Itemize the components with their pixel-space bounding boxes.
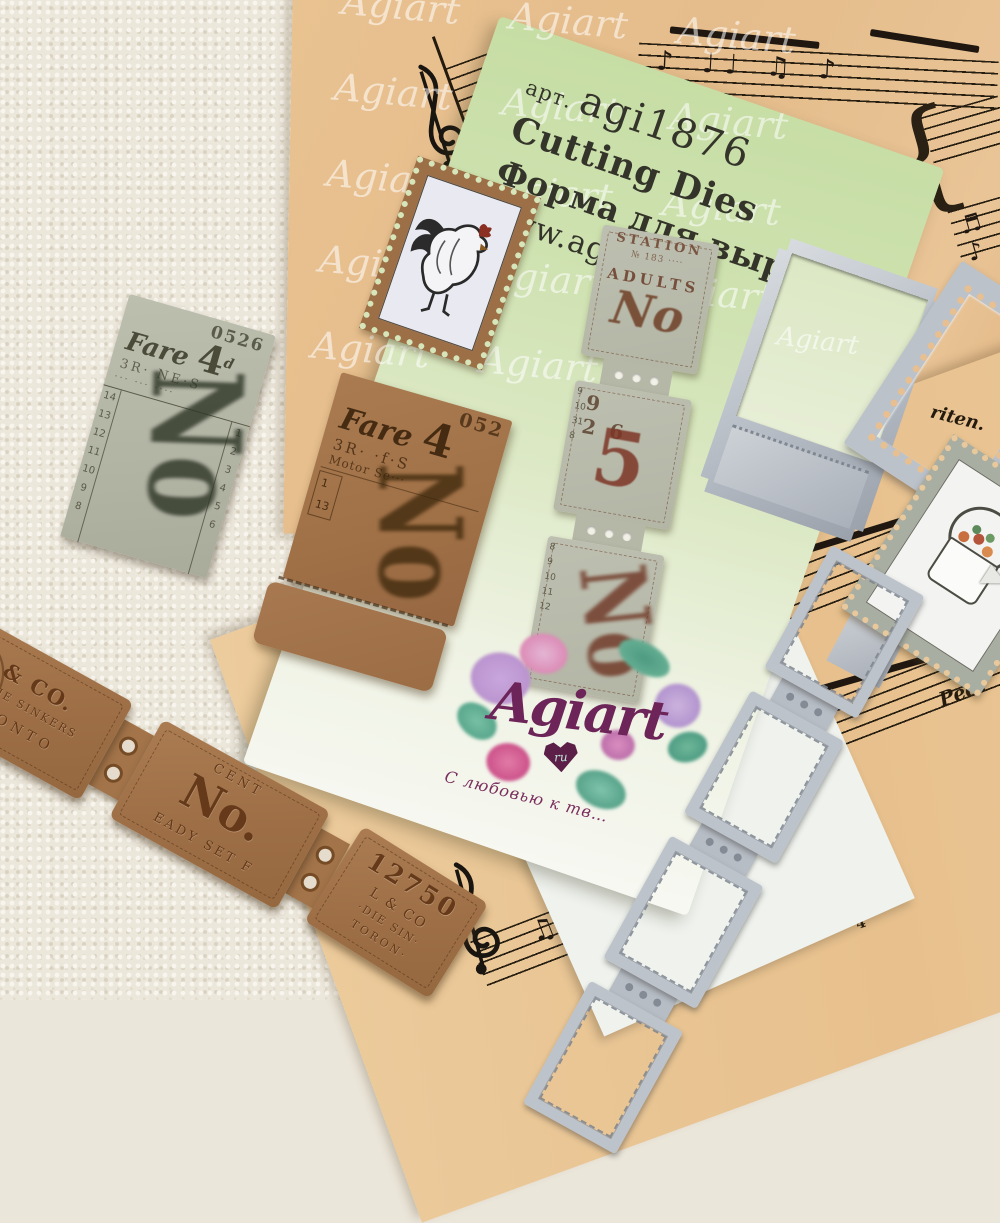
punch-hole — [621, 531, 631, 541]
strip-segment-five: 9 26 5 9 10 31 8 — [553, 380, 692, 530]
punch-hole — [586, 525, 596, 535]
chain-line: L & CO — [332, 863, 465, 954]
brand-name: Agiart — [487, 668, 670, 753]
die-hole — [652, 997, 663, 1008]
watermark-through-window: Agiart — [775, 321, 860, 361]
die-hole — [624, 982, 635, 993]
heart-icon: ru — [543, 742, 578, 773]
die-hole — [718, 844, 729, 855]
die-hole — [704, 837, 715, 848]
punch-hole — [649, 375, 659, 385]
punch-hole — [613, 369, 623, 379]
grunge-overprint: No — [119, 366, 271, 523]
punch-ring — [101, 761, 127, 787]
die-hole — [813, 707, 824, 718]
strip-segment-station: STATION № 183 ···· ADULTS No — [580, 224, 719, 374]
craft-product-photo: { "card": { "art_label": "арт.", "art_co… — [0, 0, 1000, 1000]
grunge-overprint: No — [353, 462, 488, 601]
leaf-blob — [665, 728, 711, 767]
chain-line: TORONTO — [0, 665, 99, 779]
punch-hole — [604, 528, 614, 538]
die-hole — [732, 852, 743, 863]
die-hole — [799, 699, 810, 710]
punch-ring — [297, 870, 323, 896]
punch-ring — [312, 842, 338, 868]
postmark-circle — [0, 616, 12, 724]
die-hole — [638, 989, 649, 1000]
punch-hole — [631, 372, 641, 382]
die-hole — [785, 691, 796, 702]
punch-ring — [116, 733, 142, 759]
